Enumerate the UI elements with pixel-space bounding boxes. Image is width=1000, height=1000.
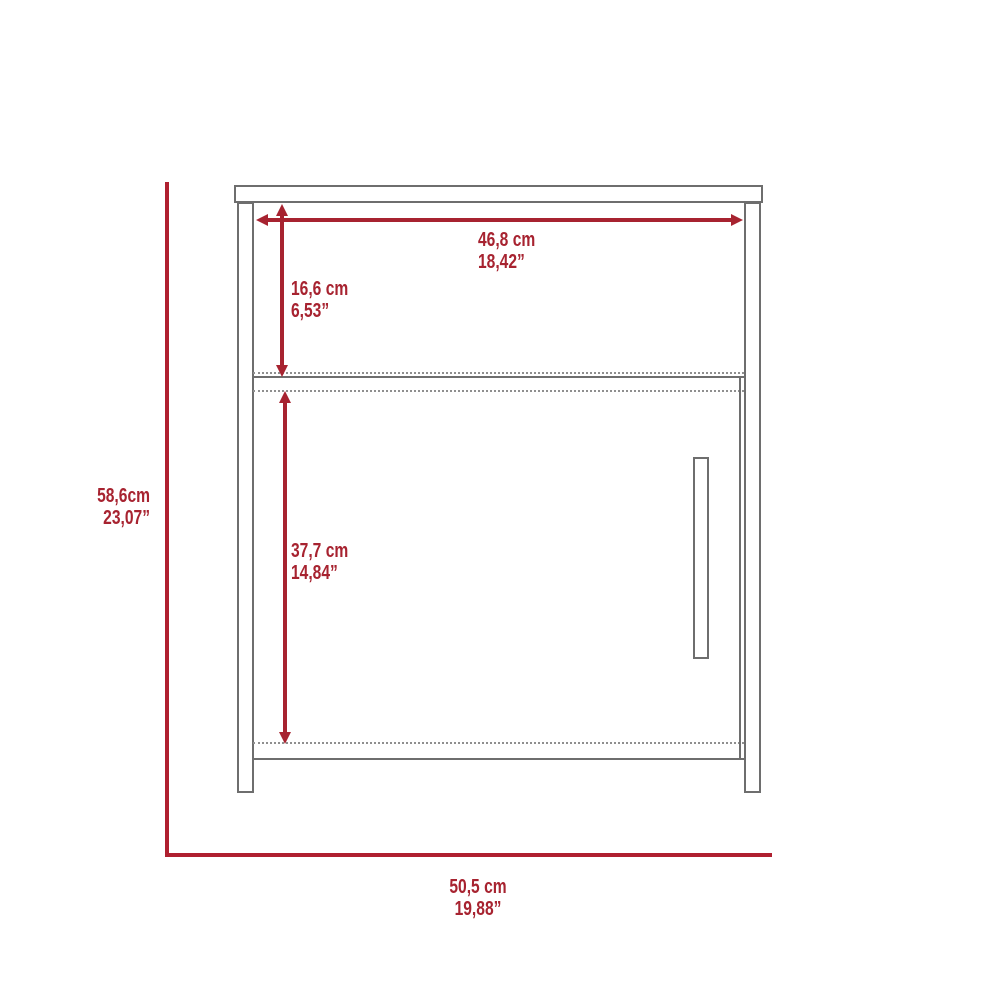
dimension-inch-text: 14,84” xyxy=(291,562,348,584)
door-right-edge xyxy=(739,377,741,759)
dimension-inch-text: 23,07” xyxy=(66,507,150,529)
overall-width-reference-line xyxy=(165,853,772,857)
top-width-dimension-label: 46,8 cm 18,42” xyxy=(478,229,535,273)
arrowhead-left-icon xyxy=(256,214,268,226)
dimension-cm-text: 46,8 cm xyxy=(478,229,535,251)
top-width-arrow-shaft xyxy=(266,218,733,222)
dimension-inch-text: 18,42” xyxy=(478,251,535,273)
arrowhead-up-icon xyxy=(279,391,291,403)
bottom-panel-hidden-edge xyxy=(253,742,744,744)
dimension-cm-text: 37,7 cm xyxy=(291,540,348,562)
arrowhead-down-icon xyxy=(276,365,288,377)
dimension-diagram: 46,8 cm 18,42” 16,6 cm 6,53” 37,7 cm 14,… xyxy=(0,0,1000,1000)
arrowhead-down-icon xyxy=(279,732,291,744)
arrowhead-up-icon xyxy=(276,204,288,216)
door-top-hidden-edge xyxy=(253,372,744,374)
dimension-inch-text: 6,53” xyxy=(291,300,348,322)
cubby-height-arrow-shaft xyxy=(280,213,284,368)
door-height-arrow-shaft xyxy=(283,400,287,735)
cabinet-top-panel xyxy=(234,185,763,203)
arrowhead-right-icon xyxy=(731,214,743,226)
dimension-inch-text: 19,88” xyxy=(416,898,541,920)
shelf-front-edge xyxy=(253,376,744,378)
door-handle xyxy=(693,457,709,659)
dimension-cm-text: 16,6 cm xyxy=(291,278,348,300)
dimension-cm-text: 58,6cm xyxy=(66,485,150,507)
door-height-dimension-label: 37,7 cm 14,84” xyxy=(291,540,348,584)
cubby-height-dimension-label: 16,6 cm 6,53” xyxy=(291,278,348,322)
shelf-bottom-hidden-edge xyxy=(253,390,744,392)
cabinet-right-leg xyxy=(744,202,761,793)
overall-height-dimension-label: 58,6cm 23,07” xyxy=(66,485,150,529)
overall-height-reference-line xyxy=(165,182,169,857)
dimension-cm-text: 50,5 cm xyxy=(416,876,541,898)
door-bottom-edge xyxy=(253,758,744,760)
overall-width-dimension-label: 50,5 cm 19,88” xyxy=(416,876,541,920)
cabinet-left-leg xyxy=(237,202,254,793)
